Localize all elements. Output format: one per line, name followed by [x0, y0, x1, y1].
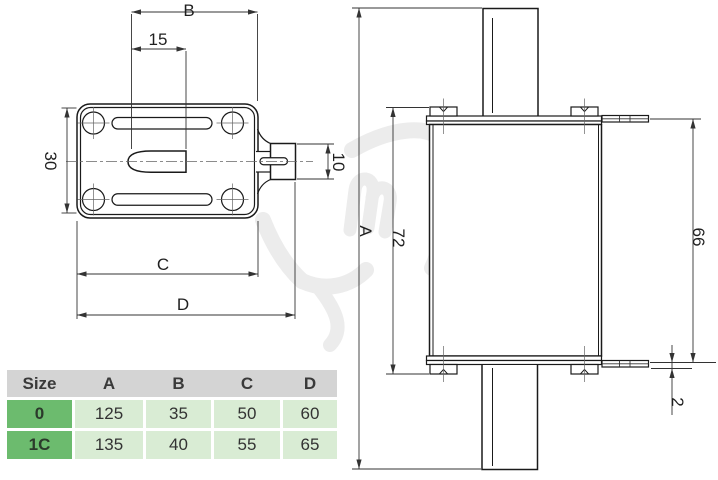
bottom-blade-contact [482, 365, 538, 470]
dim-label-10: 10 [329, 153, 348, 172]
dim-label-15: 15 [149, 30, 168, 49]
column-header-d: D [283, 370, 337, 397]
fuse-datasheet-page: B 15 30 10 C D [0, 0, 718, 480]
top-side-tab [602, 116, 649, 123]
vent-slot-bottom [112, 194, 212, 206]
side-view [427, 9, 649, 470]
table-header-row: Size A B C D [7, 370, 337, 397]
dim-label-30: 30 [41, 152, 60, 171]
tab-fillet-top [258, 129, 271, 144]
value-cell-b: 35 [146, 400, 211, 428]
value-cell-d: 65 [283, 431, 337, 459]
value-cell-c: 55 [214, 431, 280, 459]
dim-label-72: 72 [389, 229, 408, 248]
value-cell-b: 40 [146, 431, 211, 459]
column-header-a: A [75, 370, 143, 397]
dim-label-A: A [356, 225, 375, 237]
front-view [66, 104, 313, 218]
column-header-b: B [146, 370, 211, 397]
vent-slot-top [112, 118, 212, 130]
size-label-cell: 0 [7, 400, 72, 428]
fuse-barrel [430, 125, 602, 357]
dim-label-B: B [183, 1, 194, 20]
value-cell-d: 60 [283, 400, 337, 428]
bottom-side-tab [602, 361, 649, 368]
dim-label-66: 66 [689, 228, 708, 247]
dim-label-C: C [157, 255, 169, 274]
dim-label-2: 2 [668, 397, 687, 406]
table-row-size-0: 0 125 35 50 60 [7, 400, 337, 428]
value-cell-c: 50 [214, 400, 280, 428]
table-row-size-1c: 1C 135 40 55 65 [7, 431, 337, 459]
value-cell-a: 135 [75, 431, 143, 459]
tab-fillet-bottom [258, 180, 271, 195]
value-cell-a: 125 [75, 400, 143, 428]
size-label-cell: 1C [7, 431, 72, 459]
size-table: Size A B C D 0 125 35 50 60 1C 135 40 55… [7, 370, 337, 459]
dim-label-D: D [177, 295, 189, 314]
column-header-size: Size [7, 370, 72, 397]
top-blade-contact [483, 9, 538, 117]
column-header-c: C [214, 370, 280, 397]
